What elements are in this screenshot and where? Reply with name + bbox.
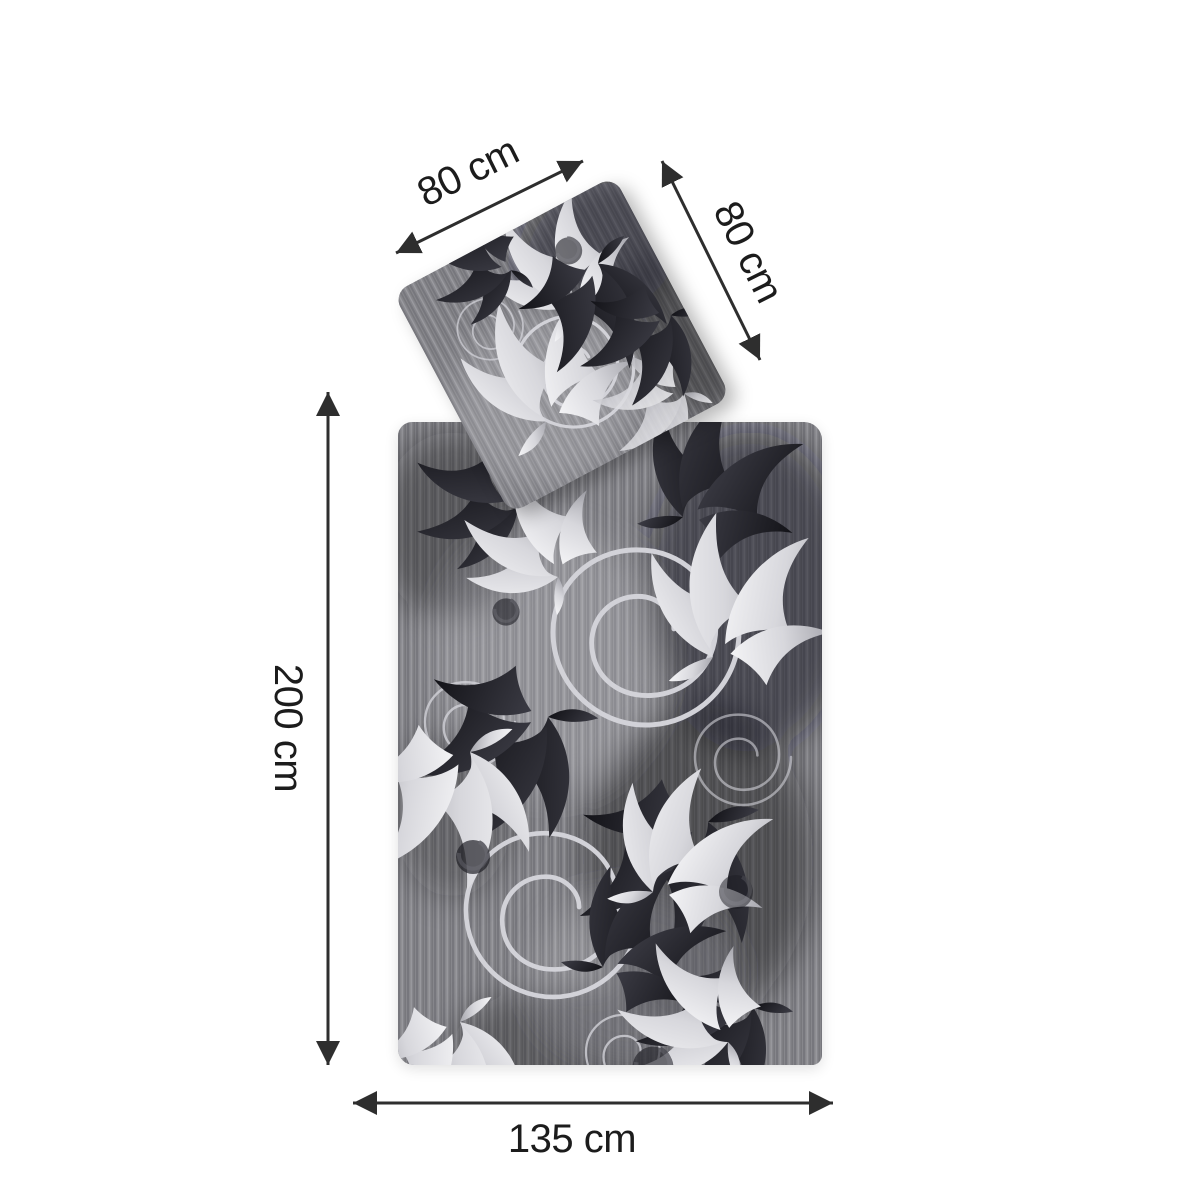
duvet-length-label: 200 cm [268,664,308,792]
pillow-width-label: 80 cm [411,130,524,213]
pillow-height-label: 80 cm [706,195,789,308]
duvet-fabric-pattern [398,422,822,1065]
duvet-width-label: 135 cm [508,1119,636,1159]
duvet-cover-image [398,422,822,1065]
bedding-dimension-diagram: 80 cm 80 cm 200 cm 135 cm [0,0,1200,1200]
